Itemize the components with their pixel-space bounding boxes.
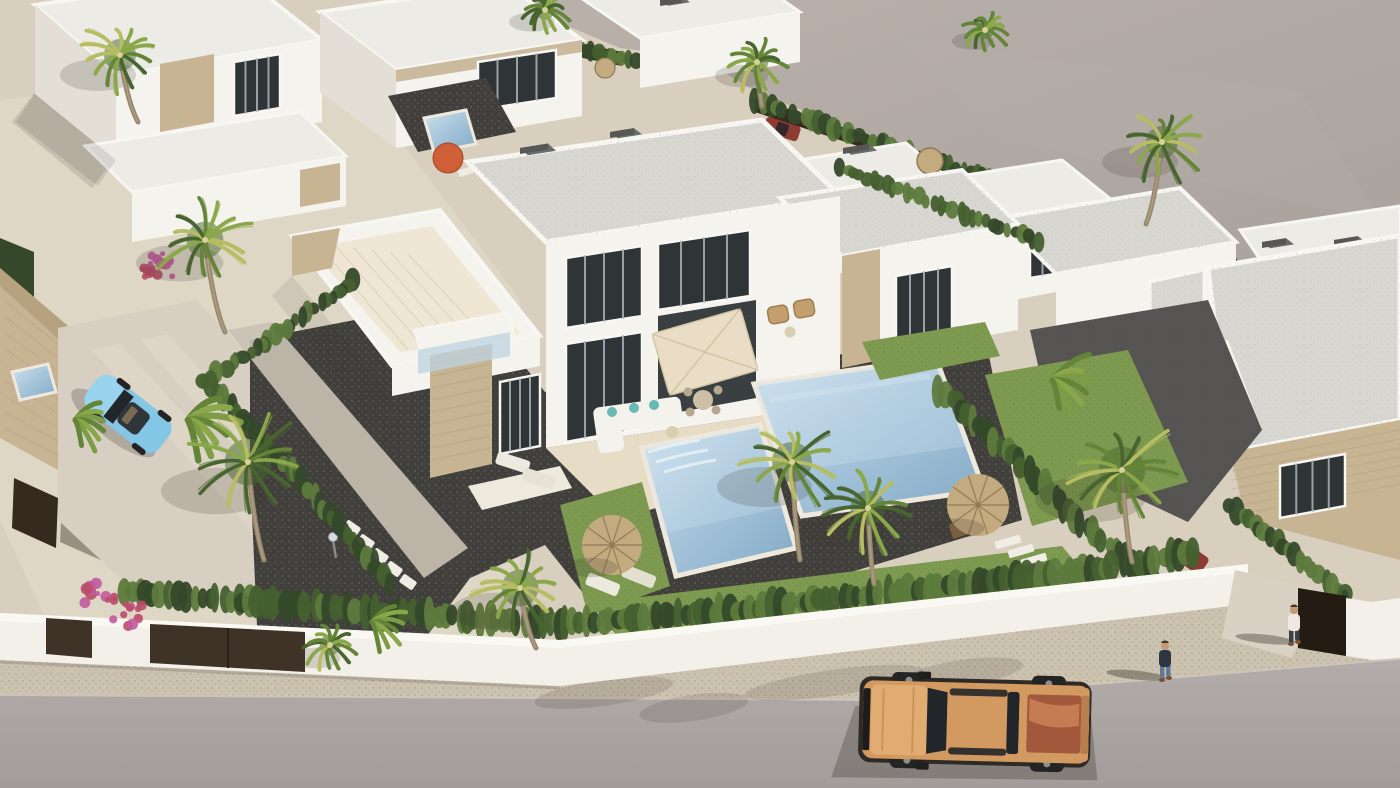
pool-partial (12, 364, 56, 400)
cushion (629, 403, 639, 413)
windshield (926, 688, 948, 755)
chair (686, 408, 695, 417)
pedestrian-gate (46, 618, 92, 658)
mirror (918, 671, 931, 678)
chair (684, 388, 693, 397)
stone-accent (160, 54, 214, 132)
cushion (607, 407, 617, 417)
mirror (916, 762, 929, 769)
wicker-chair (767, 304, 790, 324)
tailgate (1080, 696, 1090, 754)
rear-window (1006, 692, 1020, 754)
straw-parasol (917, 148, 943, 174)
chair (714, 386, 723, 395)
wicker-chair (793, 298, 816, 318)
open-gate (1298, 588, 1346, 656)
render-viewport: Aerial 3D render of a modern Mediterrane… (0, 0, 1400, 788)
stone-accent (300, 163, 340, 207)
hood (870, 684, 928, 755)
gate-pillar (1346, 598, 1372, 660)
side-table (666, 426, 678, 438)
dining-table (693, 390, 713, 410)
pickup-truck (831, 669, 1100, 784)
cushion (649, 400, 659, 410)
side-table (785, 327, 796, 338)
villa-development-render (0, 0, 1400, 788)
chair (712, 406, 721, 415)
straw-parasol (595, 58, 615, 78)
